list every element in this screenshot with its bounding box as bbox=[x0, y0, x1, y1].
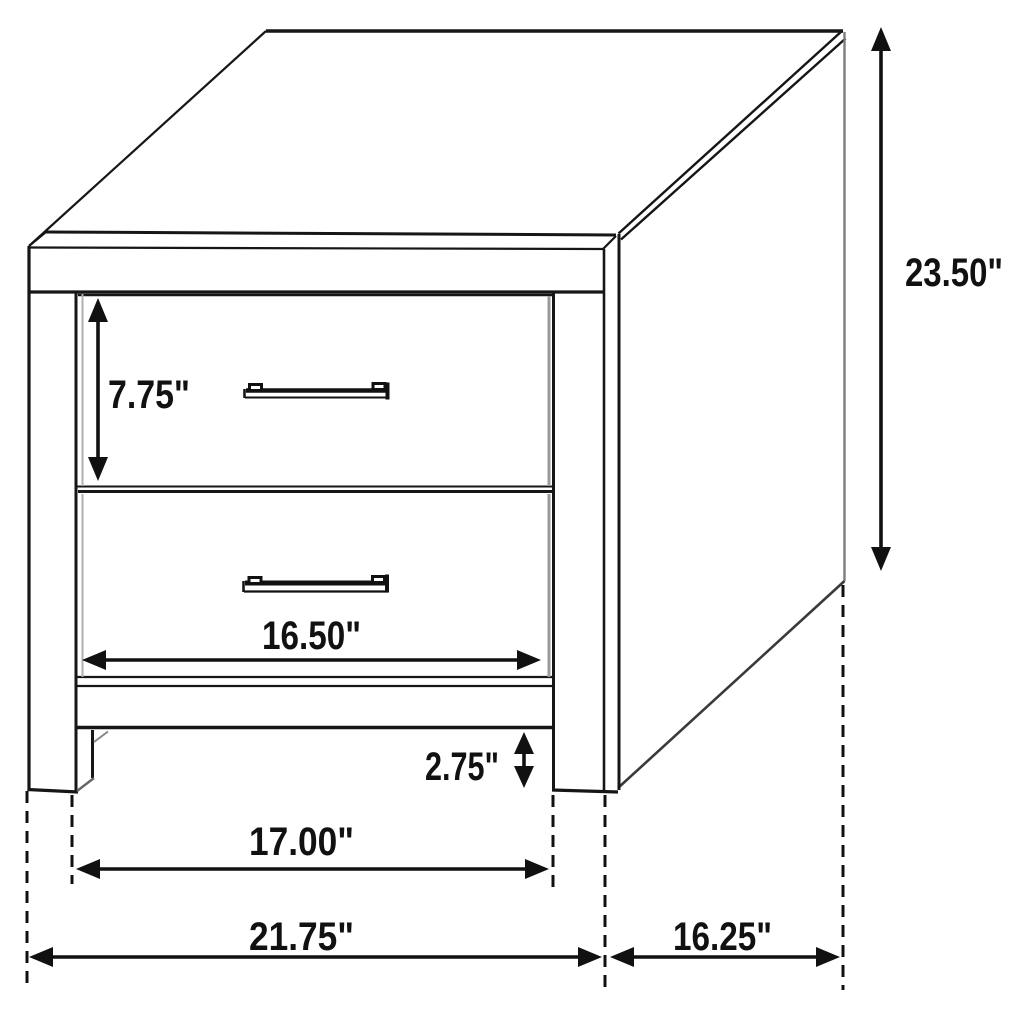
svg-text:16.25": 16.25" bbox=[673, 915, 772, 959]
svg-text:17.00": 17.00" bbox=[249, 820, 354, 864]
svg-text:23.50": 23.50" bbox=[905, 251, 1003, 295]
svg-text:21.75": 21.75" bbox=[249, 915, 354, 959]
svg-text:7.75": 7.75" bbox=[108, 373, 190, 417]
svg-text:16.50": 16.50" bbox=[262, 614, 361, 658]
svg-text:2.75": 2.75" bbox=[425, 745, 499, 789]
